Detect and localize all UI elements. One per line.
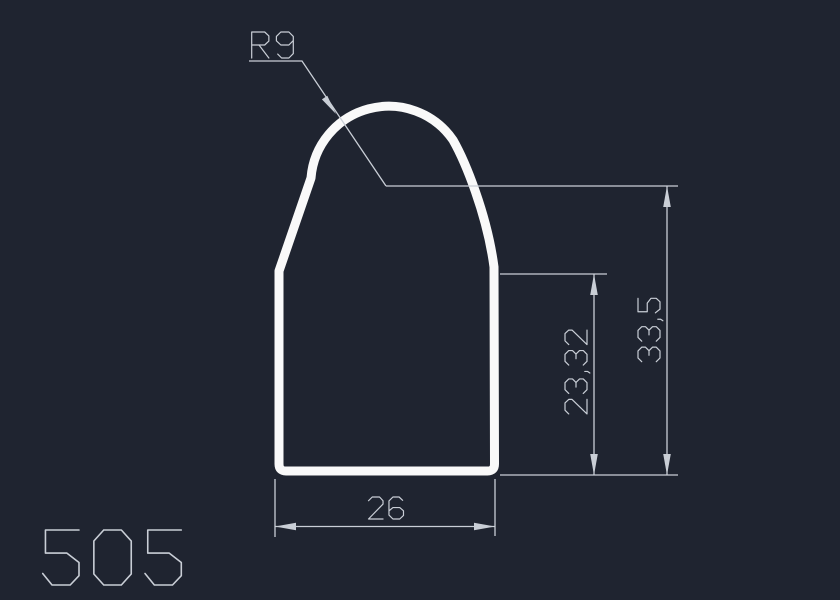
radius-label[interactable] (252, 32, 294, 58)
arrow-down-icon (663, 454, 671, 475)
radius-leader-line[interactable] (249, 61, 386, 186)
arrow-down-icon (590, 454, 598, 475)
drawing-svg (0, 0, 840, 600)
overall-height-label[interactable] (638, 298, 663, 361)
profile-entity[interactable] (279, 106, 495, 471)
width-label[interactable] (369, 497, 404, 519)
arrow-left-icon (275, 523, 296, 530)
arrow-up-icon (590, 274, 598, 295)
dim-overall-height[interactable] (386, 186, 678, 475)
radius-arrowhead-icon (322, 96, 336, 114)
drawing-number-label[interactable] (43, 530, 182, 585)
dim-width[interactable] (275, 479, 495, 537)
arrow-up-icon (663, 186, 671, 207)
profile-outline[interactable] (279, 106, 495, 471)
body-height-label[interactable] (565, 330, 590, 414)
dim-body-height[interactable] (500, 274, 607, 475)
arrow-right-icon (474, 523, 495, 530)
cad-viewport (0, 0, 840, 600)
